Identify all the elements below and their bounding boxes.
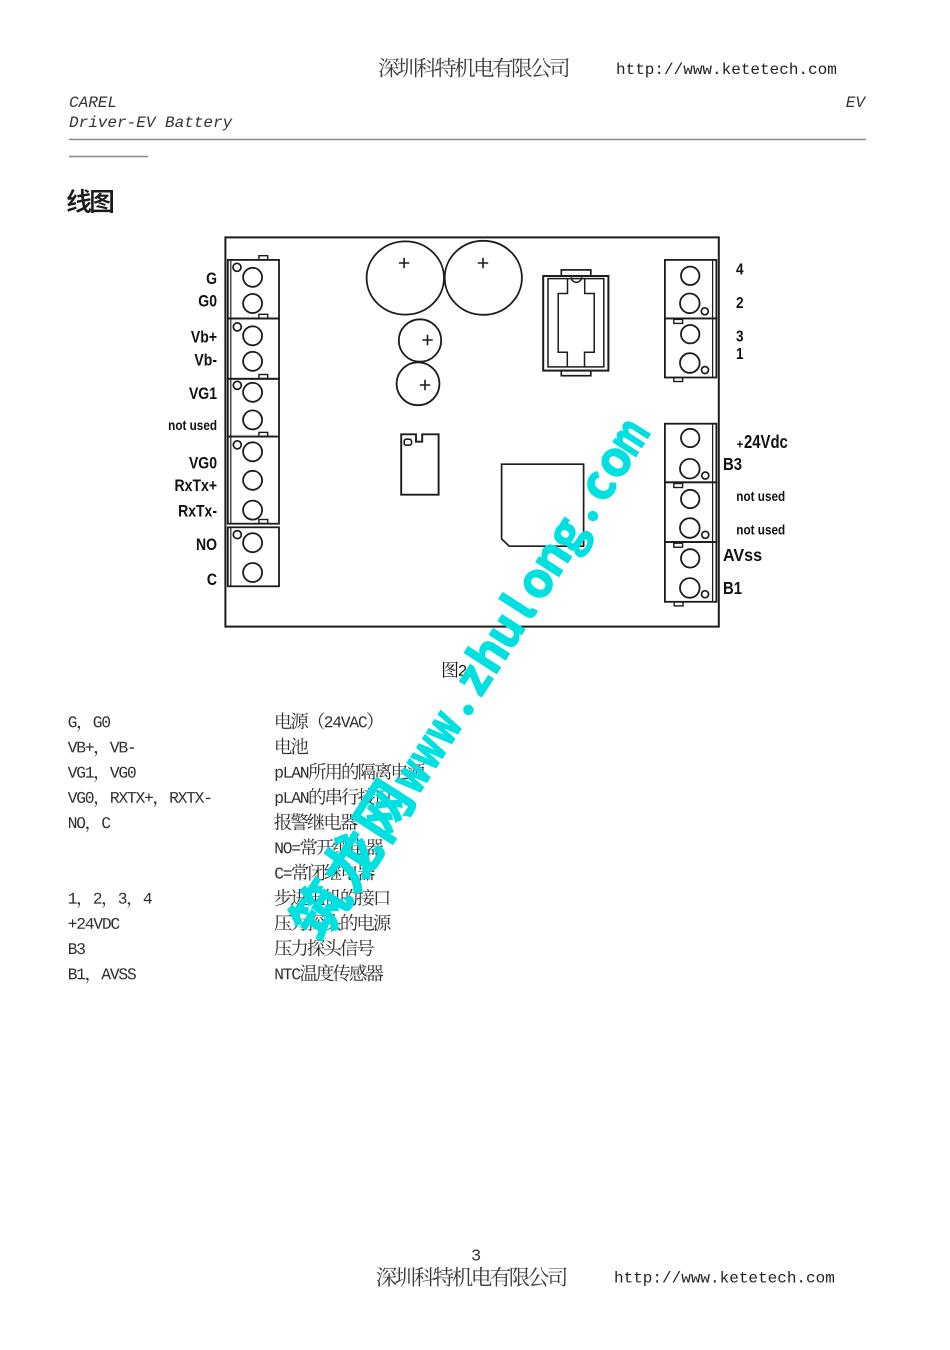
svg-text:http://www.ketetech.com: http://www.ketetech.com bbox=[616, 61, 837, 79]
svg-text:AVss: AVss bbox=[723, 545, 762, 565]
svg-text:B1: B1 bbox=[723, 579, 742, 598]
svg-text:2: 2 bbox=[736, 295, 744, 312]
svg-text:not used: not used bbox=[168, 417, 217, 433]
svg-text:not used: not used bbox=[736, 488, 785, 504]
svg-text:3: 3 bbox=[471, 1247, 481, 1266]
svg-text:B3: B3 bbox=[723, 455, 742, 474]
svg-text:4: 4 bbox=[736, 261, 744, 278]
svg-text:RxTx-: RxTx- bbox=[178, 502, 217, 520]
svg-text:RxTx+: RxTx+ bbox=[175, 477, 218, 495]
svg-text:C: C bbox=[207, 571, 217, 589]
svg-text:G: G bbox=[206, 270, 217, 288]
svg-text:not used: not used bbox=[736, 522, 785, 538]
svg-text:1: 1 bbox=[736, 346, 744, 363]
svg-text:3: 3 bbox=[736, 328, 744, 345]
svg-text:NO: NO bbox=[196, 536, 217, 554]
svg-text:http://www.ketetech.com: http://www.ketetech.com bbox=[614, 1270, 835, 1288]
svg-text:EV: EV bbox=[846, 94, 867, 112]
svg-text:CAREL: CAREL bbox=[69, 94, 117, 112]
svg-text:+: + bbox=[737, 437, 744, 452]
svg-text:24Vdc: 24Vdc bbox=[744, 432, 788, 453]
svg-text:Driver-EV Battery: Driver-EV Battery bbox=[69, 114, 233, 132]
svg-text:VG1: VG1 bbox=[189, 385, 217, 403]
svg-text:Vb+: Vb+ bbox=[191, 328, 217, 346]
svg-text:Vb-: Vb- bbox=[194, 351, 217, 369]
svg-text:VG0: VG0 bbox=[189, 454, 217, 472]
svg-text:G0: G0 bbox=[198, 292, 217, 310]
